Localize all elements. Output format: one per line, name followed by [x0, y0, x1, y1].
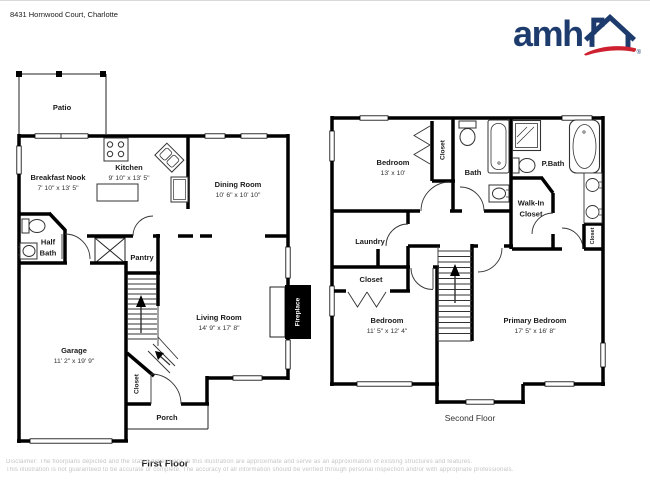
room-label-living-room: Living Room14' 9" x 17' 8" — [196, 313, 241, 333]
room-label-laundry: Laundry — [355, 237, 385, 248]
room-label-kitchen: Kitchen9' 10" x 13' 5" — [108, 163, 149, 183]
first-floor-doors — [62, 216, 181, 404]
second-floor-caption: Second Floor — [445, 413, 496, 423]
room-label-fireplace: Fireplace — [295, 298, 302, 327]
room-label-stair-closet: Closet — [134, 374, 141, 394]
room-label-bedroom2: Bedroom11' 5" x 12' 4" — [367, 316, 408, 336]
disclaimer-line1: Disclaimer: The floorplans depicted and … — [6, 459, 650, 465]
floorplan-page: 8431 Hornwood Court, Charlotte amh ® — [0, 0, 650, 489]
room-label-primary-bath: P.Bath — [542, 159, 565, 170]
room-label-linen-closet: Closet — [590, 228, 596, 245]
room-label-bath: Bath — [465, 168, 482, 179]
second-floor-stairs — [438, 246, 472, 341]
floorplan-drawing — [0, 1, 650, 489]
room-label-pantry: Pantry — [130, 253, 153, 264]
room-label-garage: Garage11' 2" x 19' 9" — [54, 346, 95, 366]
room-label-primary-bedroom: Primary Bedroom17' 5" x 16' 8" — [504, 316, 567, 336]
room-label-patio: Patio — [53, 103, 71, 114]
room-label-walk-in-closet: Walk-In Closet — [509, 199, 553, 220]
room-label-half-bath: Half Bath — [35, 238, 61, 259]
disclaimer-line2: This illustration is not guaranteed to b… — [6, 467, 650, 473]
room-label-bedroom1-closet: Closet — [440, 140, 447, 160]
room-label-breakfast-nook: Breakfast Nook7' 10" x 13' 5" — [30, 173, 85, 193]
room-label-porch: Porch — [156, 413, 177, 424]
room-label-bedroom1: Bedroom13' x 10' — [377, 158, 410, 178]
room-label-hall-closet: Closet — [360, 275, 383, 286]
room-label-dining-room: Dining Room10' 6" x 10' 10" — [215, 180, 262, 200]
